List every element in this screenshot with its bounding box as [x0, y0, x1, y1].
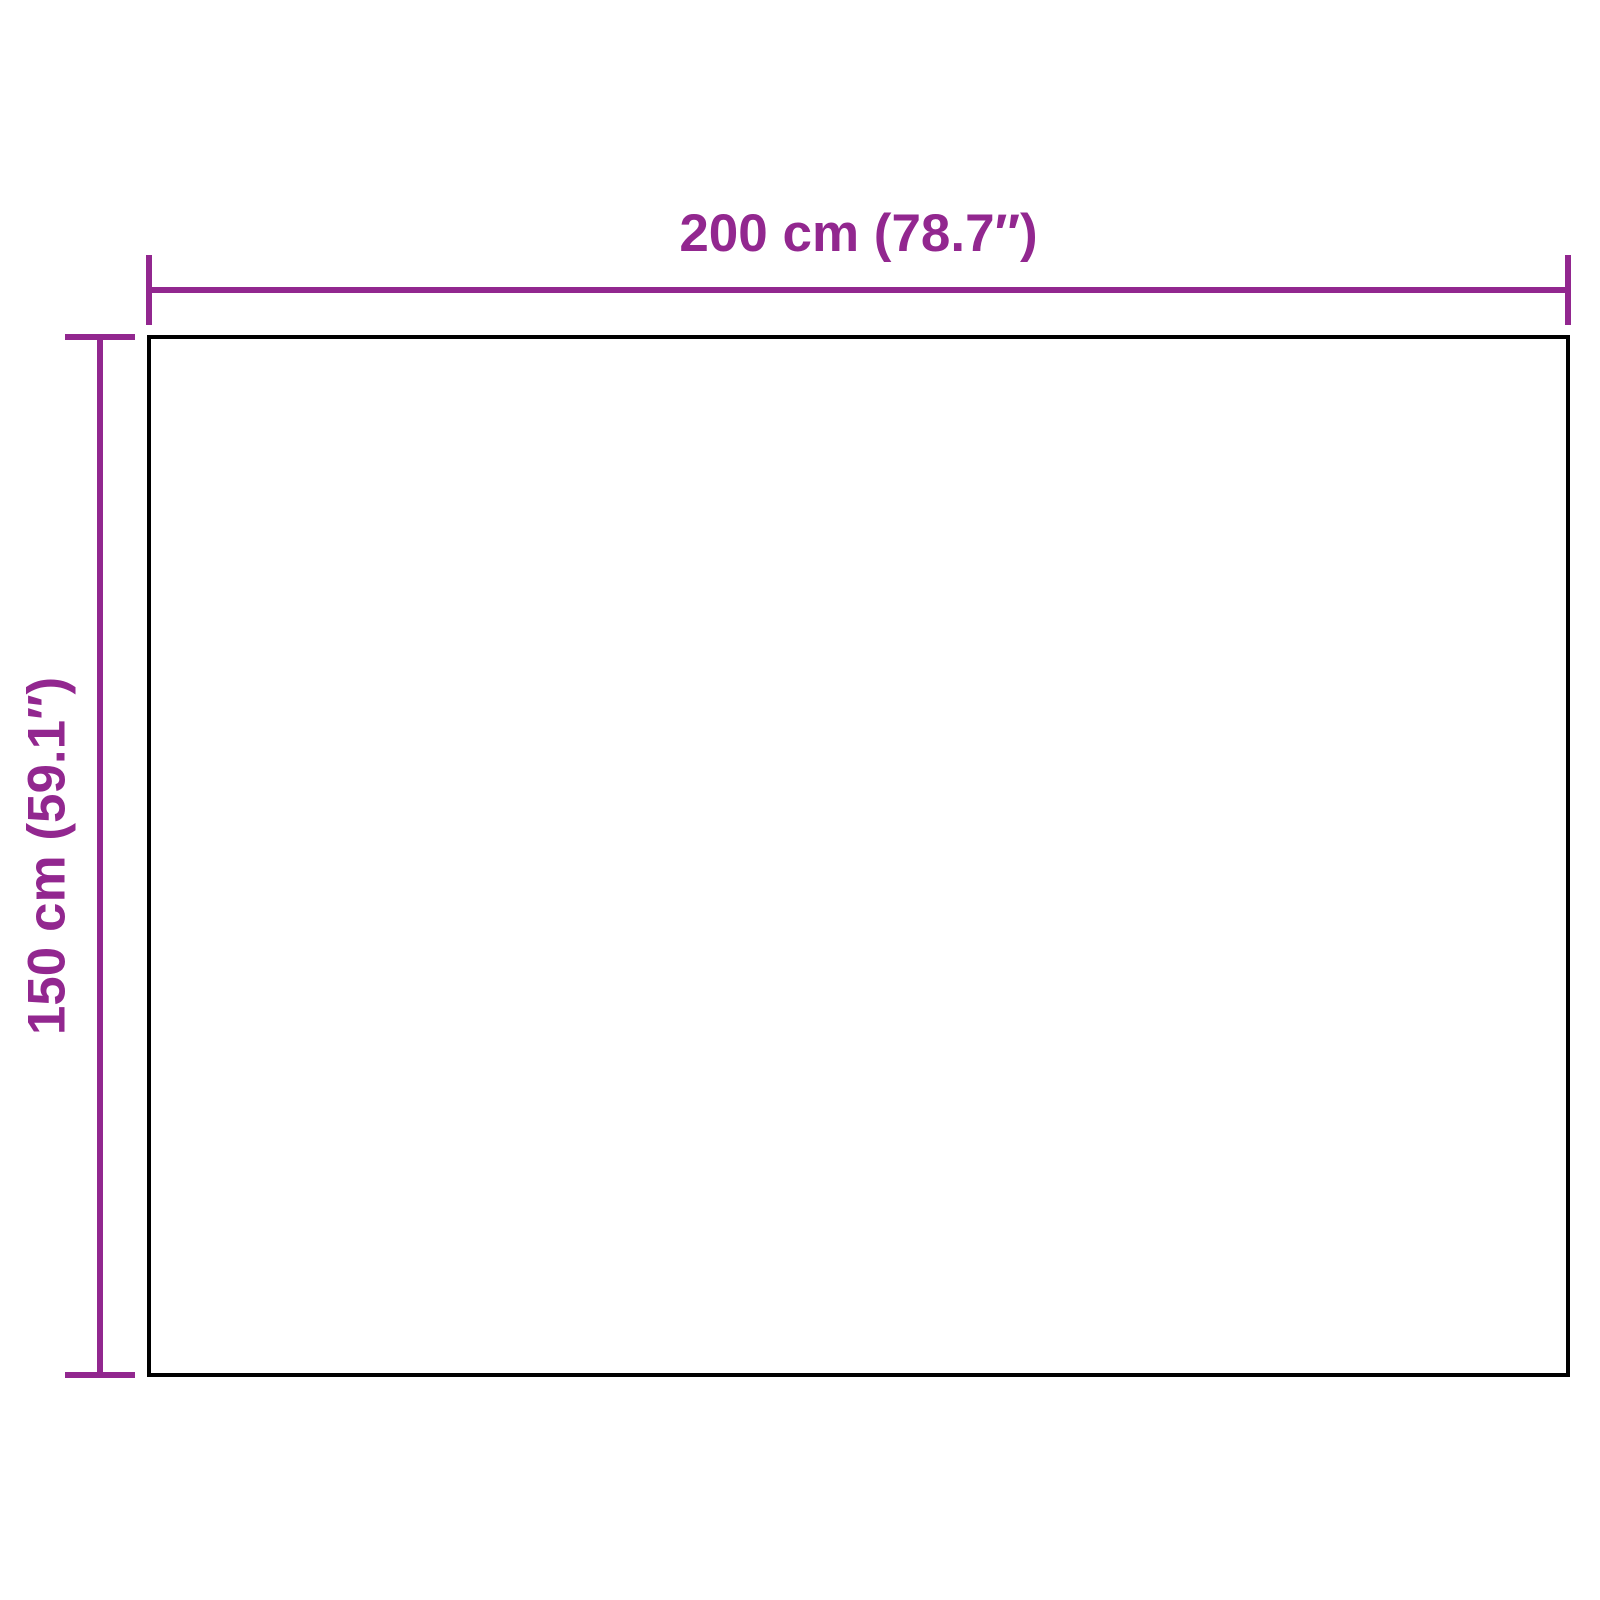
dimension-diagram: 200 cm (78.7″) 150 cm (59.1″): [0, 0, 1600, 1600]
height-dimension-label: 150 cm (59.1″): [21, 677, 74, 1035]
width-dimension-tick-right: [1565, 255, 1571, 325]
height-dimension-tick-bottom: [65, 1372, 135, 1378]
width-dimension-tick-left: [146, 255, 152, 325]
width-dimension-line: [146, 287, 1571, 293]
width-dimension-label: 200 cm (78.7″): [146, 207, 1571, 260]
height-dimension-line: [97, 337, 103, 1375]
height-dimension-tick-top: [65, 334, 135, 340]
product-outline: [147, 335, 1570, 1377]
